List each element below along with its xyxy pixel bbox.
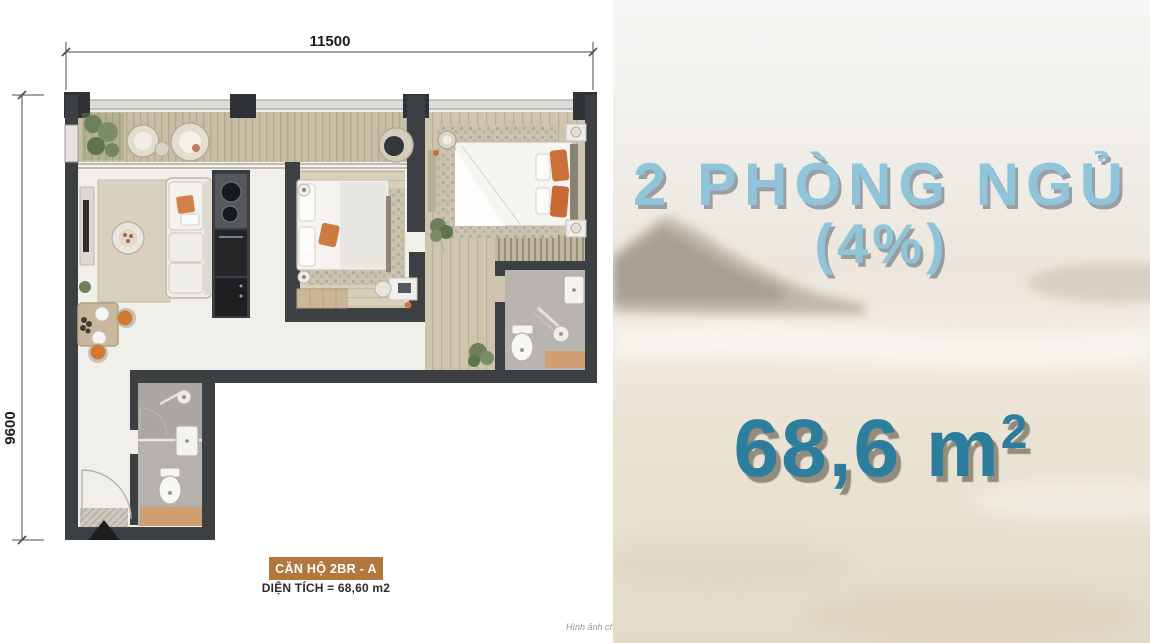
wall-bedroom2-bottom	[285, 308, 425, 322]
wall-right	[585, 95, 597, 383]
window-left	[65, 125, 78, 162]
shore-foam	[613, 325, 1150, 368]
master-bath-mat	[545, 351, 587, 368]
burner	[221, 182, 241, 202]
wall-bench	[428, 150, 436, 212]
dim-height-label: 9600	[2, 411, 19, 444]
wall-leg-right	[202, 381, 215, 540]
promo-area: 68,6 m2	[613, 402, 1150, 496]
promo-area-value: 68,6 m	[734, 403, 1001, 494]
dresser	[297, 289, 347, 308]
orange-deco	[433, 150, 439, 156]
page: 11500 9600	[0, 0, 1150, 643]
fridge	[215, 278, 247, 316]
plant-small	[79, 281, 91, 293]
dimension-top: 11500	[62, 33, 597, 90]
orange-pillow	[550, 185, 570, 217]
bed2-bench	[386, 196, 391, 272]
tv	[83, 200, 89, 252]
unit-label-text: CĂN HỘ 2BR - A	[275, 562, 377, 576]
bath2-door-gap	[130, 430, 138, 454]
desk-chair	[375, 281, 391, 297]
side-table	[155, 142, 169, 156]
window-band-top	[66, 100, 593, 109]
floor-plan-panel: 11500 9600	[0, 0, 613, 643]
floor-plan-drawing: 11500 9600	[0, 0, 613, 643]
planter-box	[82, 113, 124, 160]
orange-throw	[176, 195, 195, 214]
orange-deco	[405, 302, 412, 309]
promo-panel: 2 PHÒNG NGỦ (4%) 68,6 m2	[613, 0, 1150, 643]
bath2-mat	[140, 507, 204, 526]
toilet	[159, 476, 181, 504]
promo-area-sup: 2	[1001, 406, 1030, 459]
sofa	[166, 178, 212, 298]
column	[230, 94, 256, 118]
kitchen-unit	[212, 170, 250, 318]
footnote: Hình ảnh ch	[566, 622, 615, 632]
wall-masterbath-top	[495, 261, 585, 270]
orange-pillow	[549, 149, 569, 182]
area-label: DIỆN TÍCH = 68,60 m2	[222, 581, 430, 595]
dimension-left: 9600	[2, 91, 44, 544]
beach-background	[613, 0, 1150, 643]
unit-label: CĂN HỘ 2BR - A	[269, 557, 383, 580]
balcony-slider	[78, 162, 407, 170]
masterbath-door-gap	[495, 276, 505, 302]
wall-leg-bottom	[65, 527, 215, 540]
dim-width-label: 11500	[310, 33, 351, 50]
wall-bottom	[130, 370, 597, 383]
burner	[222, 206, 238, 222]
headboard	[570, 144, 578, 224]
promo-title: 2 PHÒNG NGỦ	[613, 150, 1150, 219]
wall-bedroom2-right-upper	[407, 95, 425, 232]
master-wardrobe	[495, 235, 585, 261]
promo-subtitle: (4%)	[613, 211, 1150, 276]
toilet	[511, 333, 533, 361]
